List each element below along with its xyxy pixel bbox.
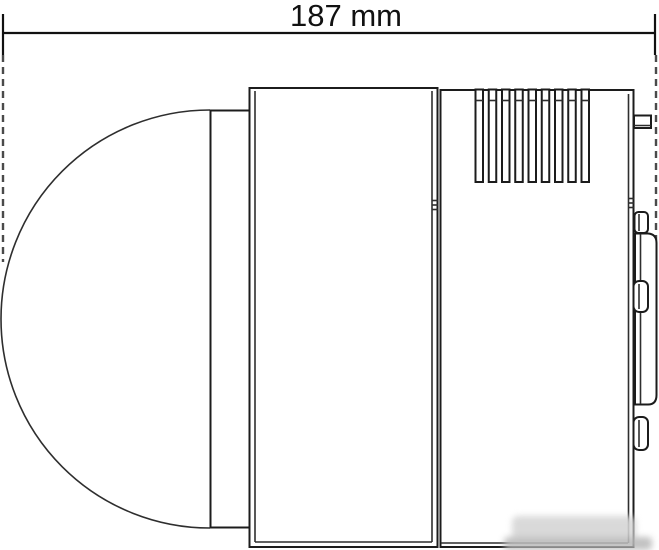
bracket-screw-top — [635, 212, 649, 233]
vent-slot — [489, 90, 497, 183]
dome-arc — [1, 110, 210, 528]
body-front-outline — [250, 88, 438, 547]
vent-slot — [529, 90, 537, 183]
technical-drawing-canvas: 187 mm — [0, 0, 659, 550]
bracket-screw-middle — [634, 281, 649, 312]
side-tab — [634, 116, 651, 129]
watermark-band — [504, 537, 652, 550]
mounting-bracket — [634, 212, 657, 450]
vent-slot — [542, 90, 550, 183]
bracket-screw-bottom — [634, 417, 649, 450]
watermark-blob — [512, 516, 636, 540]
dimension-label: 187 mm — [290, 0, 402, 33]
vent-slot — [476, 90, 484, 183]
body-front-section — [250, 88, 439, 547]
lens-barrel — [210, 110, 250, 528]
vent-slot — [502, 90, 510, 183]
watermark — [504, 516, 652, 550]
vent-slot — [515, 90, 523, 183]
vent-slot — [582, 90, 590, 183]
drawing-svg: 187 mm — [0, 0, 659, 550]
vent-slots — [476, 90, 590, 183]
body-rear-section — [441, 90, 652, 548]
vent-slot — [568, 90, 576, 183]
bracket-outline — [635, 234, 657, 405]
vent-slot — [555, 90, 563, 183]
